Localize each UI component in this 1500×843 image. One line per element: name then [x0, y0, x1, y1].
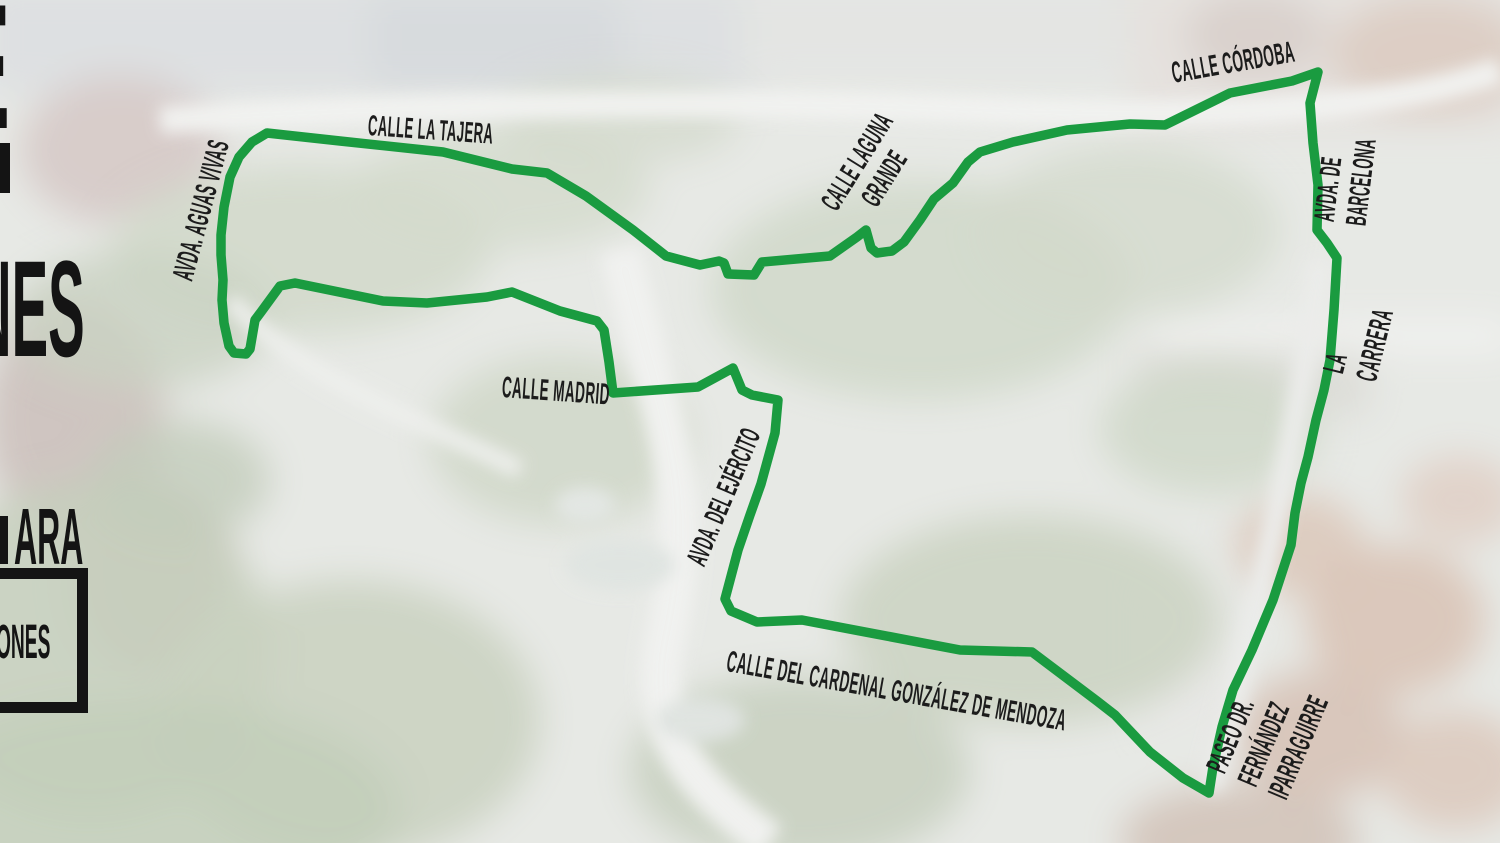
title-line2-clipped: NES: [0, 241, 85, 378]
title-line3-clipped: ARA: [14, 497, 83, 577]
inscription-box-label-clipped: ONES: [0, 619, 50, 667]
clipped-letter-sliver-2: [0, 516, 8, 564]
race-route-poster: CALLE LA TAJERAAVDA. AGUAS VIVASCALLE CÓ…: [0, 0, 1500, 843]
clipped-letter-sliver-1: [0, 143, 10, 193]
poster-title-layer: ENESARAONES: [0, 0, 1500, 843]
title-line1-clipped: E: [0, 0, 9, 156]
